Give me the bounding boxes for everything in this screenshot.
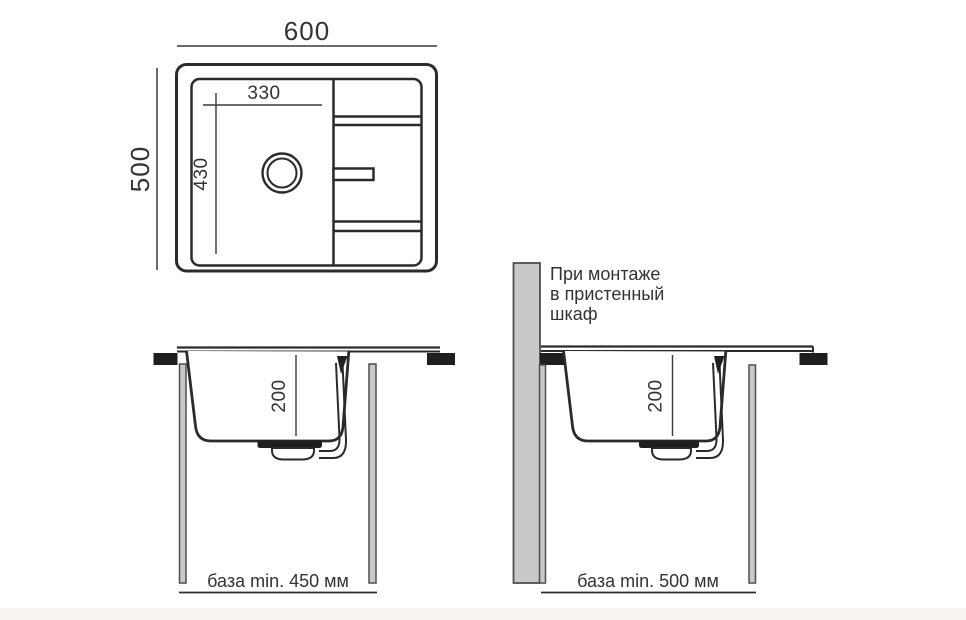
- dim-label-overall-width: 600: [284, 16, 330, 46]
- faucet-hole-tab: [334, 169, 374, 181]
- cabinet-panel-right-wall: [749, 365, 756, 583]
- note-line-3: шкаф: [550, 304, 598, 324]
- drain-flange: [258, 441, 323, 449]
- mounting-clamp-left-wall: [540, 353, 565, 365]
- drain-flange-wall: [639, 441, 699, 449]
- base-label-front: база min. 450 мм: [207, 571, 349, 591]
- drawing-canvas: 600 500 330 430: [0, 0, 966, 620]
- note-line-2: в пристенный: [550, 284, 664, 304]
- base-label-wall: база min. 500 мм: [577, 571, 719, 591]
- dim-label-overall-depth: 500: [125, 146, 155, 192]
- note-line-1: При монтаже: [550, 264, 660, 284]
- drain-trap: [272, 448, 314, 460]
- mounting-clamp-left: [154, 353, 178, 365]
- wall-panel: [514, 263, 541, 583]
- drain-trap-wall: [652, 448, 691, 460]
- mounting-clamp-right-wall: [800, 353, 828, 365]
- cabinet-panel-left: [180, 364, 187, 583]
- section-wall: При монтаже в пристенный шкаф 200 база m…: [514, 263, 828, 593]
- section-front: 200 база min. 450 мм: [154, 348, 456, 593]
- sink-installation-drawing: 600 500 330 430: [0, 0, 966, 620]
- mounting-clamp-right: [427, 353, 455, 365]
- dim-label-bowl-length: 430: [191, 157, 212, 190]
- cabinet-panel-right: [369, 364, 376, 583]
- bowl-profile: [187, 351, 349, 441]
- sink-inner-edge: [192, 79, 422, 266]
- dim-label-bowl-depth-wall: 200: [646, 379, 667, 412]
- dim-label-bowl-depth-front: 200: [269, 379, 290, 412]
- dim-label-bowl-width: 330: [247, 83, 280, 104]
- background-strip: [0, 608, 966, 620]
- cabinet-panel-left-wall: [540, 365, 546, 583]
- top-view: 600 500 330 430: [125, 16, 437, 271]
